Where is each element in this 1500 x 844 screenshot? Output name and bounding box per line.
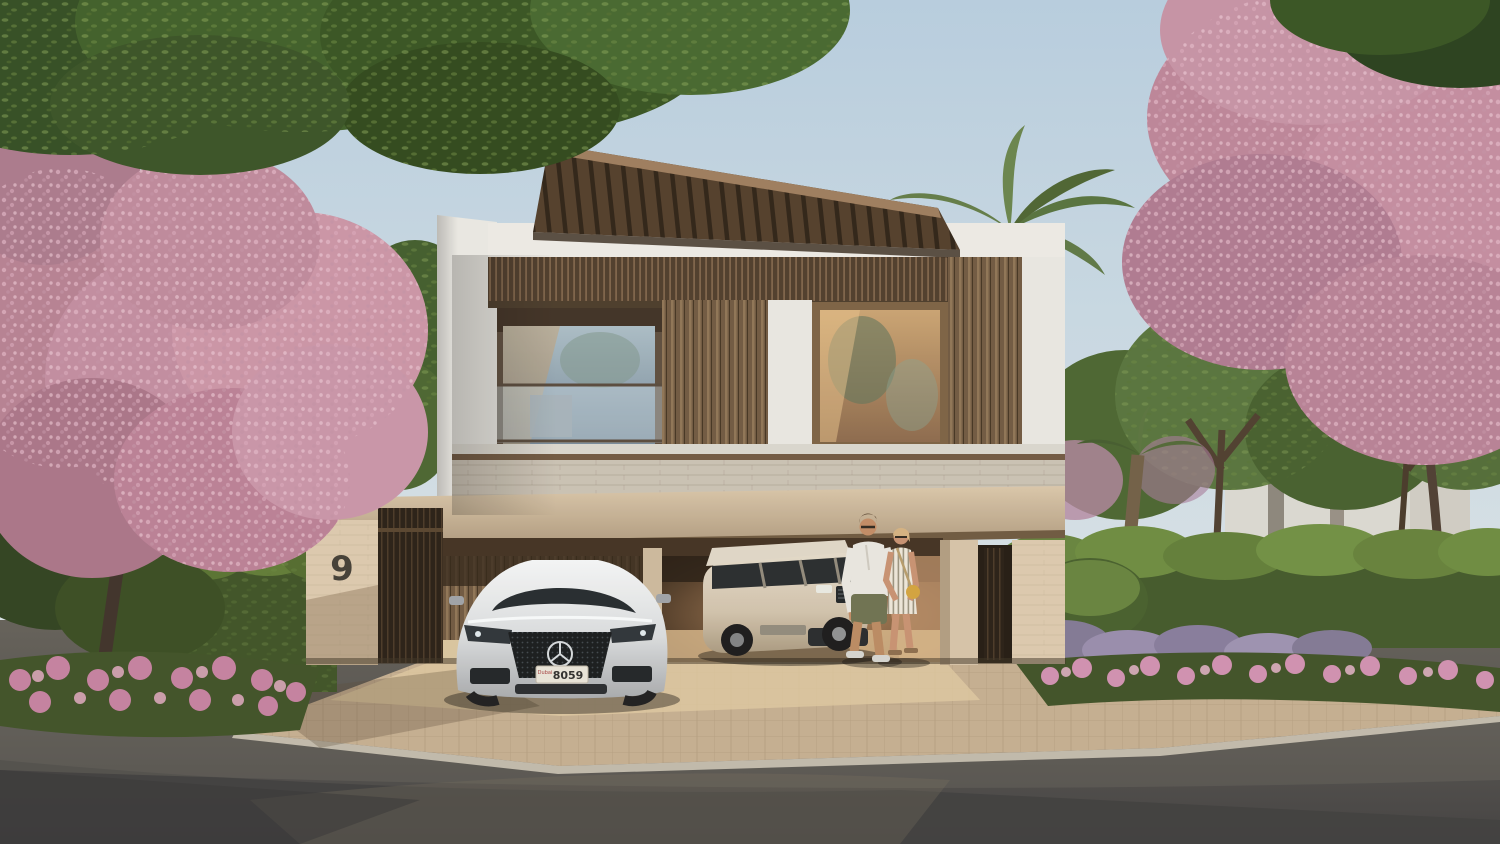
villa-render-scene: 9 bbox=[0, 0, 1500, 844]
light-overlays bbox=[0, 0, 1500, 844]
scene-canvas: 9 bbox=[0, 0, 1500, 844]
